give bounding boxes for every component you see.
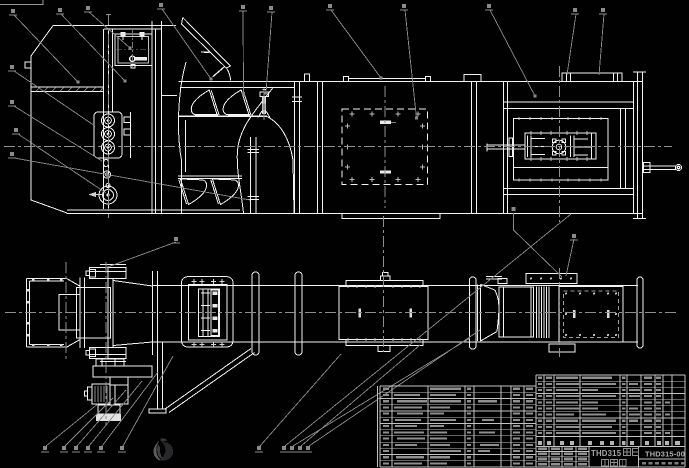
svg-text:THD315-00: THD315-00 xyxy=(645,450,685,459)
svg-text:THD315: THD315 xyxy=(591,449,622,458)
